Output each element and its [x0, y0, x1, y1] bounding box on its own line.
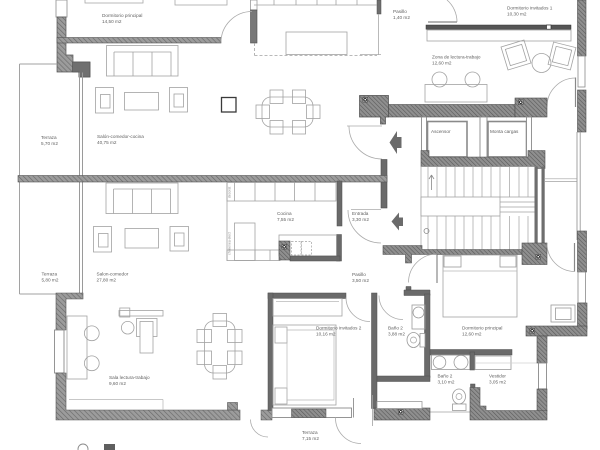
- svg-text:Baño 2: Baño 2: [388, 326, 403, 331]
- svg-text:5,80 m2: 5,80 m2: [42, 278, 59, 283]
- svg-text:Sala lectura-trabajo: Sala lectura-trabajo: [109, 375, 150, 380]
- svg-text:12,60 m2: 12,60 m2: [432, 61, 452, 66]
- svg-text:14,50 m2: 14,50 m2: [102, 19, 122, 24]
- svg-text:Cocina: Cocina: [277, 211, 292, 216]
- svg-text:chimenea elect: chimenea elect: [228, 232, 232, 255]
- svg-text:27,80 m2: 27,80 m2: [97, 278, 117, 283]
- svg-text:40,75 m2: 40,75 m2: [97, 140, 117, 145]
- svg-text:Terraza: Terraza: [42, 272, 58, 277]
- svg-text:Dormitorio invitados 1: Dormitorio invitados 1: [507, 6, 553, 11]
- svg-text:3,05 m2: 3,05 m2: [489, 380, 506, 385]
- svg-text:Terraza: Terraza: [302, 430, 318, 435]
- svg-text:3,88 m2: 3,88 m2: [388, 332, 405, 337]
- svg-text:Terraza: Terraza: [41, 135, 57, 140]
- svg-text:3,50 m2: 3,50 m2: [352, 278, 369, 283]
- svg-text:Dormitorio principal: Dormitorio principal: [462, 326, 502, 331]
- svg-text:1,40 m2: 1,40 m2: [393, 15, 410, 20]
- svg-text:5,70 m2: 5,70 m2: [41, 141, 58, 146]
- svg-text:Ascensor: Ascensor: [431, 129, 451, 134]
- svg-text:3,10 m2: 3,10 m2: [438, 380, 455, 385]
- svg-text:Salón-comedor-cocina: Salón-comedor-cocina: [97, 134, 144, 139]
- svg-text:Dormitorio principal: Dormitorio principal: [102, 13, 142, 18]
- svg-text:12,60 m2: 12,60 m2: [462, 332, 482, 337]
- svg-text:Salon-comedor: Salon-comedor: [97, 272, 129, 277]
- svg-text:10,30 m2: 10,30 m2: [507, 12, 527, 17]
- svg-text:decorat: decorat: [228, 187, 232, 198]
- svg-text:9,60 m2: 9,60 m2: [109, 381, 126, 386]
- svg-text:Dormitorio invitados 2: Dormitorio invitados 2: [316, 326, 362, 331]
- svg-text:7,15 m2: 7,15 m2: [302, 436, 319, 441]
- svg-text:Pasillo: Pasillo: [352, 272, 366, 277]
- svg-text:10,16 m2: 10,16 m2: [316, 332, 336, 337]
- svg-text:Zona de lectura-trabajo: Zona de lectura-trabajo: [432, 55, 481, 60]
- svg-text:Vestidor: Vestidor: [489, 374, 506, 379]
- svg-text:Baño 2: Baño 2: [438, 374, 453, 379]
- svg-text:3,30 m2: 3,30 m2: [352, 217, 369, 222]
- svg-text:Pasillo: Pasillo: [393, 9, 407, 14]
- svg-text:Entrada: Entrada: [352, 211, 369, 216]
- svg-text:Monta cargas: Monta cargas: [490, 129, 519, 134]
- svg-text:7,55 m2: 7,55 m2: [277, 217, 294, 222]
